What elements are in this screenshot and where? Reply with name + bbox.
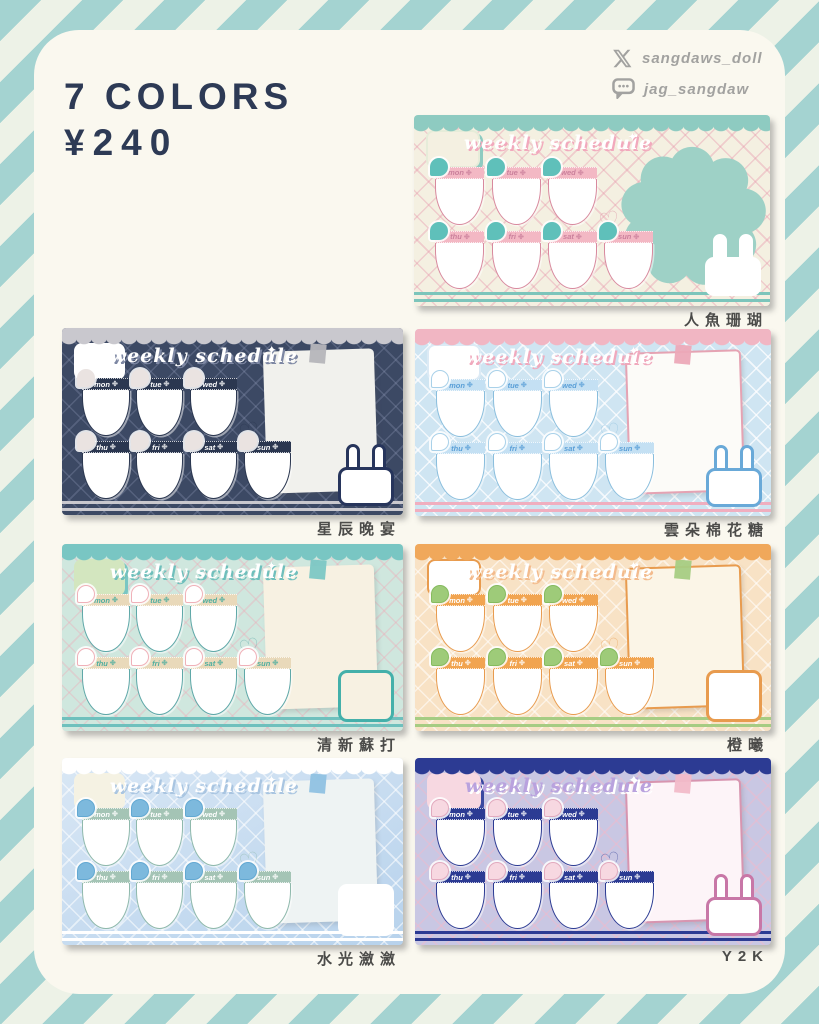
pocket-body (548, 242, 597, 289)
bunny-note (338, 884, 394, 936)
scallop-border-decoration (415, 544, 771, 555)
day-pocket: fri ✤ (493, 442, 542, 500)
clover-icon: ✤ (518, 233, 524, 241)
day-pocket: wed ✤ (549, 594, 598, 652)
teardrop-icon (488, 648, 506, 666)
teardrop-icon (599, 222, 617, 240)
pocket-day-label: mon (94, 810, 110, 819)
pocket-body (493, 819, 542, 866)
day-pocket: sat ✤ (549, 871, 598, 929)
pocket-day-label: mon (449, 810, 465, 819)
clover-icon: ✤ (272, 873, 278, 881)
clover-icon: ✤ (576, 233, 582, 241)
pocket-body (190, 819, 237, 866)
day-pocket: mon ✤ (435, 167, 484, 225)
pocket-day-label: mon (94, 380, 110, 389)
day-pocket: tue ✤ (493, 594, 542, 652)
pocket-day-label: wed (562, 810, 577, 819)
bunny-note (706, 670, 762, 722)
scallop-border-decoration (414, 115, 770, 126)
teardrop-icon (430, 222, 448, 240)
clover-icon: ✤ (162, 443, 168, 451)
scallop-border-decoration (62, 328, 403, 339)
pocket-day-label: mon (449, 381, 465, 390)
clover-icon: ✤ (519, 659, 525, 667)
card-label: 清新蘇打 (62, 734, 403, 755)
pocket-body (549, 453, 598, 500)
clover-icon: ✤ (162, 873, 168, 881)
card-label: 雲朵棉花糖 (415, 519, 771, 540)
day-pocket: tue ✤ (136, 808, 183, 866)
pocket-day-label: tue (507, 168, 518, 177)
pocket-day-label: sat (204, 443, 215, 452)
day-pocket: sat ✤ (549, 657, 598, 715)
pocket-body (549, 882, 598, 929)
weekly-schedule-card: weekly schedule ✦ ♡ mon ✤ tue ✤ wed ✤ th… (415, 544, 771, 731)
pocket-day-label: sat (564, 873, 575, 882)
pocket-day-label: tue (508, 810, 519, 819)
day-pocket: tue ✤ (493, 379, 542, 437)
clover-icon: ✤ (465, 444, 471, 452)
product-variant: weekly schedule ✦ ♡ mon ✤ tue ✤ wed ✤ th… (415, 544, 771, 755)
clover-icon: ✤ (112, 380, 118, 388)
pocket-day-label: sun (619, 659, 632, 668)
pocket-day-label: thu (451, 873, 463, 882)
teardrop-icon (487, 158, 505, 176)
clover-icon: ✤ (579, 810, 585, 818)
card-label: 人魚珊瑚 (414, 309, 770, 330)
day-pocket: sat ✤ (549, 442, 598, 500)
clover-icon: ✤ (110, 443, 116, 451)
bunny-note (705, 234, 761, 296)
clover-icon: ✤ (219, 380, 225, 388)
day-pocket: sun ✤ (244, 441, 291, 499)
pocket-body (492, 178, 541, 225)
clover-icon: ✤ (633, 233, 639, 241)
pocket-day-label: sun (257, 873, 270, 882)
day-pocket: mon ✤ (436, 379, 485, 437)
day-pocket: mon ✤ (82, 808, 129, 866)
bunny-note-body (706, 897, 762, 936)
weekly-schedule-card: weekly schedule ✦ ♡ mon ✤ tue ✤ wed ✤ th… (62, 328, 403, 515)
teardrop-icon (488, 433, 506, 451)
pocket-body (435, 178, 484, 225)
scallop-border-decoration (62, 544, 403, 555)
clover-icon: ✤ (521, 810, 527, 818)
teardrop-icon (543, 158, 561, 176)
pocket-body (549, 605, 598, 652)
pocket-body (605, 453, 654, 500)
pocket-body (244, 668, 291, 715)
day-pocket: fri ✤ (136, 871, 183, 929)
day-pocket: wed ✤ (549, 379, 598, 437)
bunny-note-body (706, 670, 762, 722)
pocket-day-label: thu (450, 232, 462, 241)
product-variant: weekly schedule ✦ ♡ mon ✤ tue ✤ wed ✤ th… (414, 115, 770, 330)
bunny-note (338, 670, 394, 722)
clover-icon: ✤ (467, 596, 473, 604)
pocket-body (604, 242, 653, 289)
pocket-day-label: sat (564, 444, 575, 453)
pocket-day-label: fri (152, 659, 160, 668)
weekly-schedule-card: weekly schedule ✦ ♡ mon ✤ tue ✤ wed ✤ th… (415, 758, 771, 945)
pocket-day-label: mon (449, 596, 465, 605)
day-pocket: thu ✤ (436, 871, 485, 929)
pocket-day-label: thu (96, 873, 108, 882)
clover-icon: ✤ (578, 169, 584, 177)
pocket-day-label: sat (204, 659, 215, 668)
product-variant: weekly schedule ✦ ♡ mon ✤ tue ✤ wed ✤ th… (415, 329, 771, 540)
pocket-day-label: fri (508, 232, 516, 241)
pocket-day-label: fri (509, 659, 517, 668)
weekly-schedule-card: weekly schedule ✦ ♡ mon ✤ tue ✤ wed ✤ th… (62, 544, 403, 731)
pocket-body (493, 882, 542, 929)
clover-icon: ✤ (634, 444, 640, 452)
product-variant: weekly schedule ✦ ♡ mon ✤ tue ✤ wed ✤ th… (62, 758, 403, 969)
pocket-body (190, 605, 237, 652)
pocket-body (136, 819, 183, 866)
teardrop-icon (544, 433, 562, 451)
day-pocket: sat ✤ (548, 231, 597, 289)
card-label: 水光瀲瀲 (62, 948, 403, 969)
pocket-body (436, 882, 485, 929)
clover-icon: ✤ (465, 873, 471, 881)
clover-icon: ✤ (466, 169, 472, 177)
day-pocket: sat ✤ (190, 441, 237, 499)
pocket-body (493, 390, 542, 437)
bunny-note (706, 445, 762, 507)
day-pocket: sat ✤ (190, 871, 237, 929)
clover-icon: ✤ (217, 873, 223, 881)
clover-icon: ✤ (519, 444, 525, 452)
pocket-body (190, 882, 237, 929)
card-label: 橙曦 (415, 734, 771, 755)
day-pocket: wed ✤ (190, 378, 237, 436)
day-pocket: wed ✤ (190, 594, 237, 652)
day-pocket: fri ✤ (493, 871, 542, 929)
day-pocket: sat ✤ (190, 657, 237, 715)
day-pocket: thu ✤ (82, 871, 129, 929)
pocket-body (436, 668, 485, 715)
clover-icon: ✤ (217, 443, 223, 451)
pocket-body (492, 242, 541, 289)
clover-icon: ✤ (162, 659, 168, 667)
pocket-body (436, 605, 485, 652)
pocket-day-label: wed (561, 168, 576, 177)
pocket-body (136, 605, 183, 652)
day-pocket: mon ✤ (82, 378, 129, 436)
pocket-day-label: sun (619, 444, 632, 453)
day-pocket: thu ✤ (436, 657, 485, 715)
pocket-day-label: thu (451, 444, 463, 453)
pocket-day-label: thu (96, 443, 108, 452)
clover-icon: ✤ (577, 873, 583, 881)
clover-icon: ✤ (467, 810, 473, 818)
pocket-body (136, 452, 183, 499)
pocket-body (82, 819, 129, 866)
pocket-body (436, 819, 485, 866)
teardrop-icon (430, 158, 448, 176)
clover-icon: ✤ (521, 596, 527, 604)
pocket-body (244, 882, 291, 929)
pocket-day-label: tue (150, 596, 161, 605)
product-variant: weekly schedule ✦ ♡ mon ✤ tue ✤ wed ✤ th… (62, 544, 403, 755)
day-pocket: fri ✤ (136, 441, 183, 499)
clover-icon: ✤ (272, 443, 278, 451)
clover-icon: ✤ (577, 444, 583, 452)
clover-icon: ✤ (579, 381, 585, 389)
pocket-day-label: fri (509, 873, 517, 882)
pocket-day-label: sat (563, 232, 574, 241)
pocket-day-label: tue (150, 380, 161, 389)
scallop-border-decoration (62, 758, 403, 769)
clover-icon: ✤ (164, 380, 170, 388)
card-label: 星辰晚宴 (62, 518, 403, 539)
pocket-body (136, 389, 183, 436)
scallop-border-decoration (415, 758, 771, 769)
pocket-day-label: wed (202, 810, 217, 819)
pocket-day-label: sat (564, 659, 575, 668)
day-pocket: mon ✤ (436, 594, 485, 652)
bunny-note-body (338, 884, 394, 936)
day-pocket: mon ✤ (436, 808, 485, 866)
clover-icon: ✤ (634, 873, 640, 881)
pocket-body (549, 819, 598, 866)
day-pocket: sun ✤ (244, 871, 291, 929)
bunny-note-body (706, 468, 762, 507)
teardrop-icon (543, 222, 561, 240)
day-pocket: sun ✤ (605, 657, 654, 715)
pocket-day-label: fri (152, 443, 160, 452)
day-pocket: fri ✤ (492, 231, 541, 289)
pocket-day-label: wed (562, 596, 577, 605)
pocket-day-label: thu (96, 659, 108, 668)
pocket-body (82, 668, 129, 715)
pocket-body (82, 882, 129, 929)
product-variant: weekly schedule ✦ ♡ mon ✤ tue ✤ wed ✤ th… (62, 328, 403, 539)
day-pocket: sun ✤ (605, 442, 654, 500)
bunny-note-body (338, 670, 394, 722)
pocket-body (190, 452, 237, 499)
day-pocket: mon ✤ (82, 594, 129, 652)
pocket-body (436, 390, 485, 437)
weekly-schedule-card: weekly schedule ✦ ♡ mon ✤ tue ✤ wed ✤ th… (415, 329, 771, 516)
clover-icon: ✤ (634, 659, 640, 667)
clover-icon: ✤ (577, 659, 583, 667)
weekly-schedule-card: weekly schedule ✦ ♡ mon ✤ tue ✤ wed ✤ th… (62, 758, 403, 945)
day-pocket: tue ✤ (492, 167, 541, 225)
day-pocket: sun ✤ (604, 231, 653, 289)
pocket-body (436, 453, 485, 500)
clover-icon: ✤ (579, 596, 585, 604)
clover-icon: ✤ (217, 659, 223, 667)
pocket-day-label: tue (508, 381, 519, 390)
pocket-body (136, 882, 183, 929)
pocket-body (136, 668, 183, 715)
clover-icon: ✤ (164, 596, 170, 604)
pocket-day-label: sun (257, 659, 270, 668)
day-pocket: tue ✤ (136, 594, 183, 652)
clover-icon: ✤ (520, 169, 526, 177)
scallop-border-decoration (415, 329, 771, 340)
clover-icon: ✤ (112, 596, 118, 604)
day-pocket: fri ✤ (136, 657, 183, 715)
clover-icon: ✤ (519, 873, 525, 881)
pocket-day-label: fri (509, 444, 517, 453)
pocket-body (493, 453, 542, 500)
pocket-day-label: tue (150, 810, 161, 819)
pocket-body (82, 452, 129, 499)
pocket-body (493, 605, 542, 652)
bunny-note (706, 874, 762, 936)
pocket-day-label: wed (202, 380, 217, 389)
pocket-body (82, 389, 129, 436)
teardrop-icon (487, 222, 505, 240)
clover-icon: ✤ (219, 596, 225, 604)
day-pocket: wed ✤ (548, 167, 597, 225)
day-pocket: fri ✤ (493, 657, 542, 715)
pocket-body (244, 452, 291, 499)
pocket-body (493, 668, 542, 715)
teardrop-icon (544, 648, 562, 666)
pocket-body (82, 605, 129, 652)
day-pocket: sun ✤ (244, 657, 291, 715)
pocket-body (605, 668, 654, 715)
pocket-day-label: sun (618, 232, 631, 241)
clover-icon: ✤ (110, 873, 116, 881)
teardrop-icon (544, 862, 562, 880)
clover-icon: ✤ (164, 810, 170, 818)
day-pocket: wed ✤ (190, 808, 237, 866)
pocket-day-label: sun (257, 443, 270, 452)
day-pocket: thu ✤ (82, 657, 129, 715)
pocket-body (605, 882, 654, 929)
card-label: Y2K (415, 948, 771, 965)
pocket-day-label: sat (204, 873, 215, 882)
clover-icon: ✤ (112, 810, 118, 818)
product-variants-area: weekly schedule ✦ ♡ mon ✤ tue ✤ wed ✤ th… (0, 0, 819, 1024)
day-pocket: tue ✤ (493, 808, 542, 866)
day-pocket: thu ✤ (435, 231, 484, 289)
pocket-day-label: wed (562, 381, 577, 390)
pocket-day-label: wed (202, 596, 217, 605)
day-pocket: wed ✤ (549, 808, 598, 866)
day-pocket: thu ✤ (82, 441, 129, 499)
pocket-body (549, 390, 598, 437)
pocket-day-label: mon (94, 596, 110, 605)
bunny-note-body (338, 467, 394, 506)
day-pocket: sun ✤ (605, 871, 654, 929)
pocket-body (549, 668, 598, 715)
teardrop-icon (488, 370, 506, 388)
clover-icon: ✤ (521, 381, 527, 389)
pocket-day-label: sun (619, 873, 632, 882)
pocket-body (190, 668, 237, 715)
clover-icon: ✤ (110, 659, 116, 667)
bunny-note (338, 444, 394, 506)
product-variant: weekly schedule ✦ ♡ mon ✤ tue ✤ wed ✤ th… (415, 758, 771, 965)
pocket-body (435, 242, 484, 289)
clover-icon: ✤ (219, 810, 225, 818)
weekly-schedule-card: weekly schedule ✦ ♡ mon ✤ tue ✤ wed ✤ th… (414, 115, 770, 306)
teardrop-icon (488, 585, 506, 603)
teardrop-icon (488, 799, 506, 817)
pocket-body (190, 389, 237, 436)
clover-icon: ✤ (464, 233, 470, 241)
clover-icon: ✤ (465, 659, 471, 667)
pocket-body (548, 178, 597, 225)
clover-icon: ✤ (467, 381, 473, 389)
pocket-day-label: mon (448, 168, 464, 177)
day-pocket: thu ✤ (436, 442, 485, 500)
pocket-day-label: tue (508, 596, 519, 605)
day-pocket: tue ✤ (136, 378, 183, 436)
bunny-note-body (705, 257, 761, 296)
pocket-day-label: fri (152, 873, 160, 882)
pocket-day-label: thu (451, 659, 463, 668)
clover-icon: ✤ (272, 659, 278, 667)
teardrop-icon (488, 862, 506, 880)
